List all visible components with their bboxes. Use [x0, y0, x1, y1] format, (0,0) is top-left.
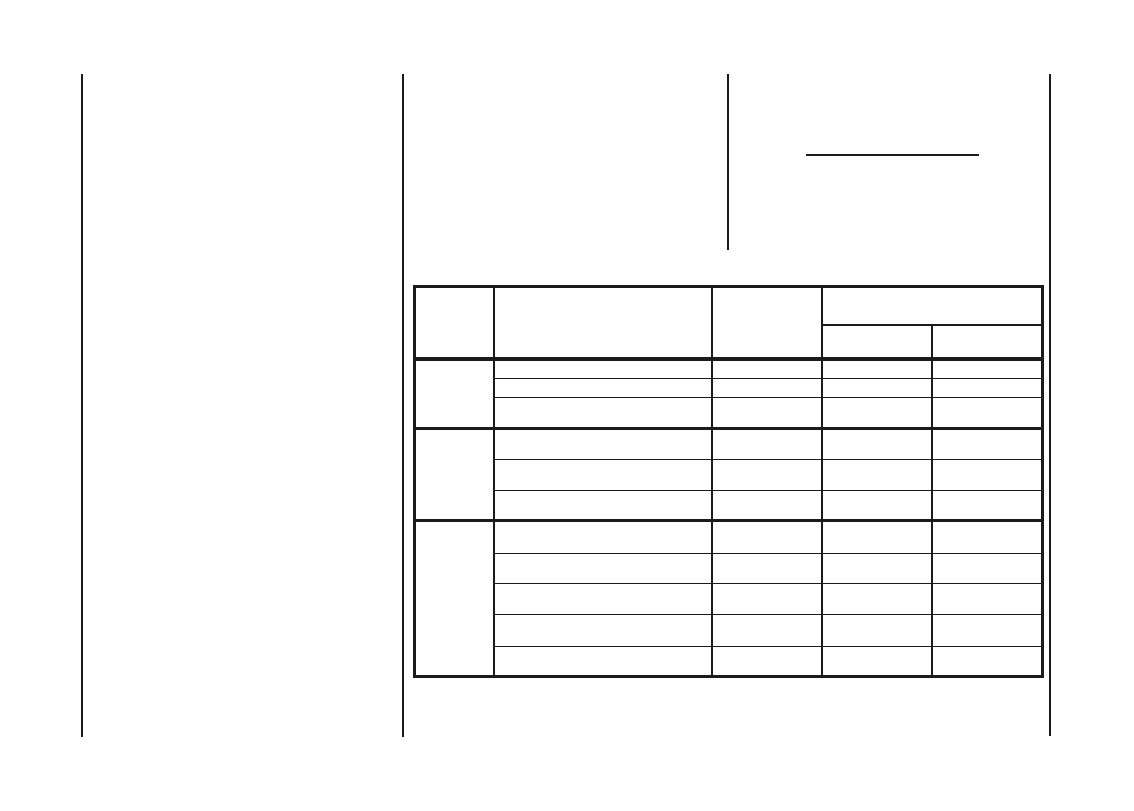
table-cell — [712, 554, 822, 584]
header-cell-col2 — [494, 287, 712, 359]
table-row — [415, 584, 1043, 615]
table-row — [415, 521, 1043, 554]
table-cell — [494, 554, 712, 584]
table-cell — [494, 521, 712, 554]
table-cell — [932, 491, 1043, 521]
table-cell — [494, 359, 712, 379]
group-label-cell — [415, 429, 494, 521]
table-cell — [822, 521, 932, 554]
table-cell — [712, 398, 822, 429]
header-cell-col1 — [415, 287, 494, 359]
table-cell — [932, 647, 1043, 677]
table-cell — [712, 491, 822, 521]
table-cell — [494, 647, 712, 677]
table-cell — [494, 615, 712, 647]
table-cell — [932, 359, 1043, 379]
fill-in-blank-line — [806, 154, 979, 156]
group-label-cell — [415, 521, 494, 677]
table-cell — [822, 647, 932, 677]
table-row — [415, 429, 1043, 460]
table-cell — [712, 647, 822, 677]
table-cell — [494, 398, 712, 429]
left-margin-rule — [81, 74, 83, 737]
table-cell — [822, 584, 932, 615]
table-cell — [712, 379, 822, 398]
right-margin-rule — [1049, 74, 1051, 736]
header-cell-col4-sub1 — [822, 325, 932, 359]
header-cell-col4-group — [822, 287, 1043, 325]
upper-column-divider-rule — [727, 74, 729, 250]
table-cell — [712, 359, 822, 379]
table-row — [415, 398, 1043, 429]
table-cell — [712, 584, 822, 615]
table-cell — [822, 554, 932, 584]
table-cell — [822, 460, 932, 491]
table-cell — [494, 379, 712, 398]
scanned-document-page — [0, 0, 1134, 811]
table-cell — [822, 398, 932, 429]
header-cell-col3 — [712, 287, 822, 359]
table-cell — [822, 429, 932, 460]
table-cell — [712, 521, 822, 554]
table-row — [415, 554, 1043, 584]
table-cell — [822, 379, 932, 398]
table-row — [415, 615, 1043, 647]
group-label-cell — [415, 359, 494, 429]
table-row — [415, 359, 1043, 379]
table-row — [415, 647, 1043, 677]
table-cell — [494, 429, 712, 460]
header-row-top — [415, 287, 1043, 325]
left-column-divider-rule — [402, 74, 404, 737]
table-cell — [494, 584, 712, 615]
table-cell — [932, 379, 1043, 398]
blank-form-table — [413, 285, 1044, 678]
table-cell — [822, 491, 932, 521]
table-cell — [822, 615, 932, 647]
table-cell — [932, 615, 1043, 647]
table-cell — [932, 584, 1043, 615]
table-row — [415, 379, 1043, 398]
table-cell — [932, 521, 1043, 554]
table-cell — [712, 429, 822, 460]
table-row — [415, 460, 1043, 491]
table-cell — [932, 398, 1043, 429]
table-cell — [932, 460, 1043, 491]
table-cell — [712, 615, 822, 647]
table-cell — [494, 460, 712, 491]
table-cell — [712, 460, 822, 491]
table-cell — [932, 554, 1043, 584]
table-cell — [932, 429, 1043, 460]
table-row — [415, 491, 1043, 521]
header-cell-col4-sub2 — [932, 325, 1043, 359]
table-cell — [494, 491, 712, 521]
table-cell — [822, 359, 932, 379]
